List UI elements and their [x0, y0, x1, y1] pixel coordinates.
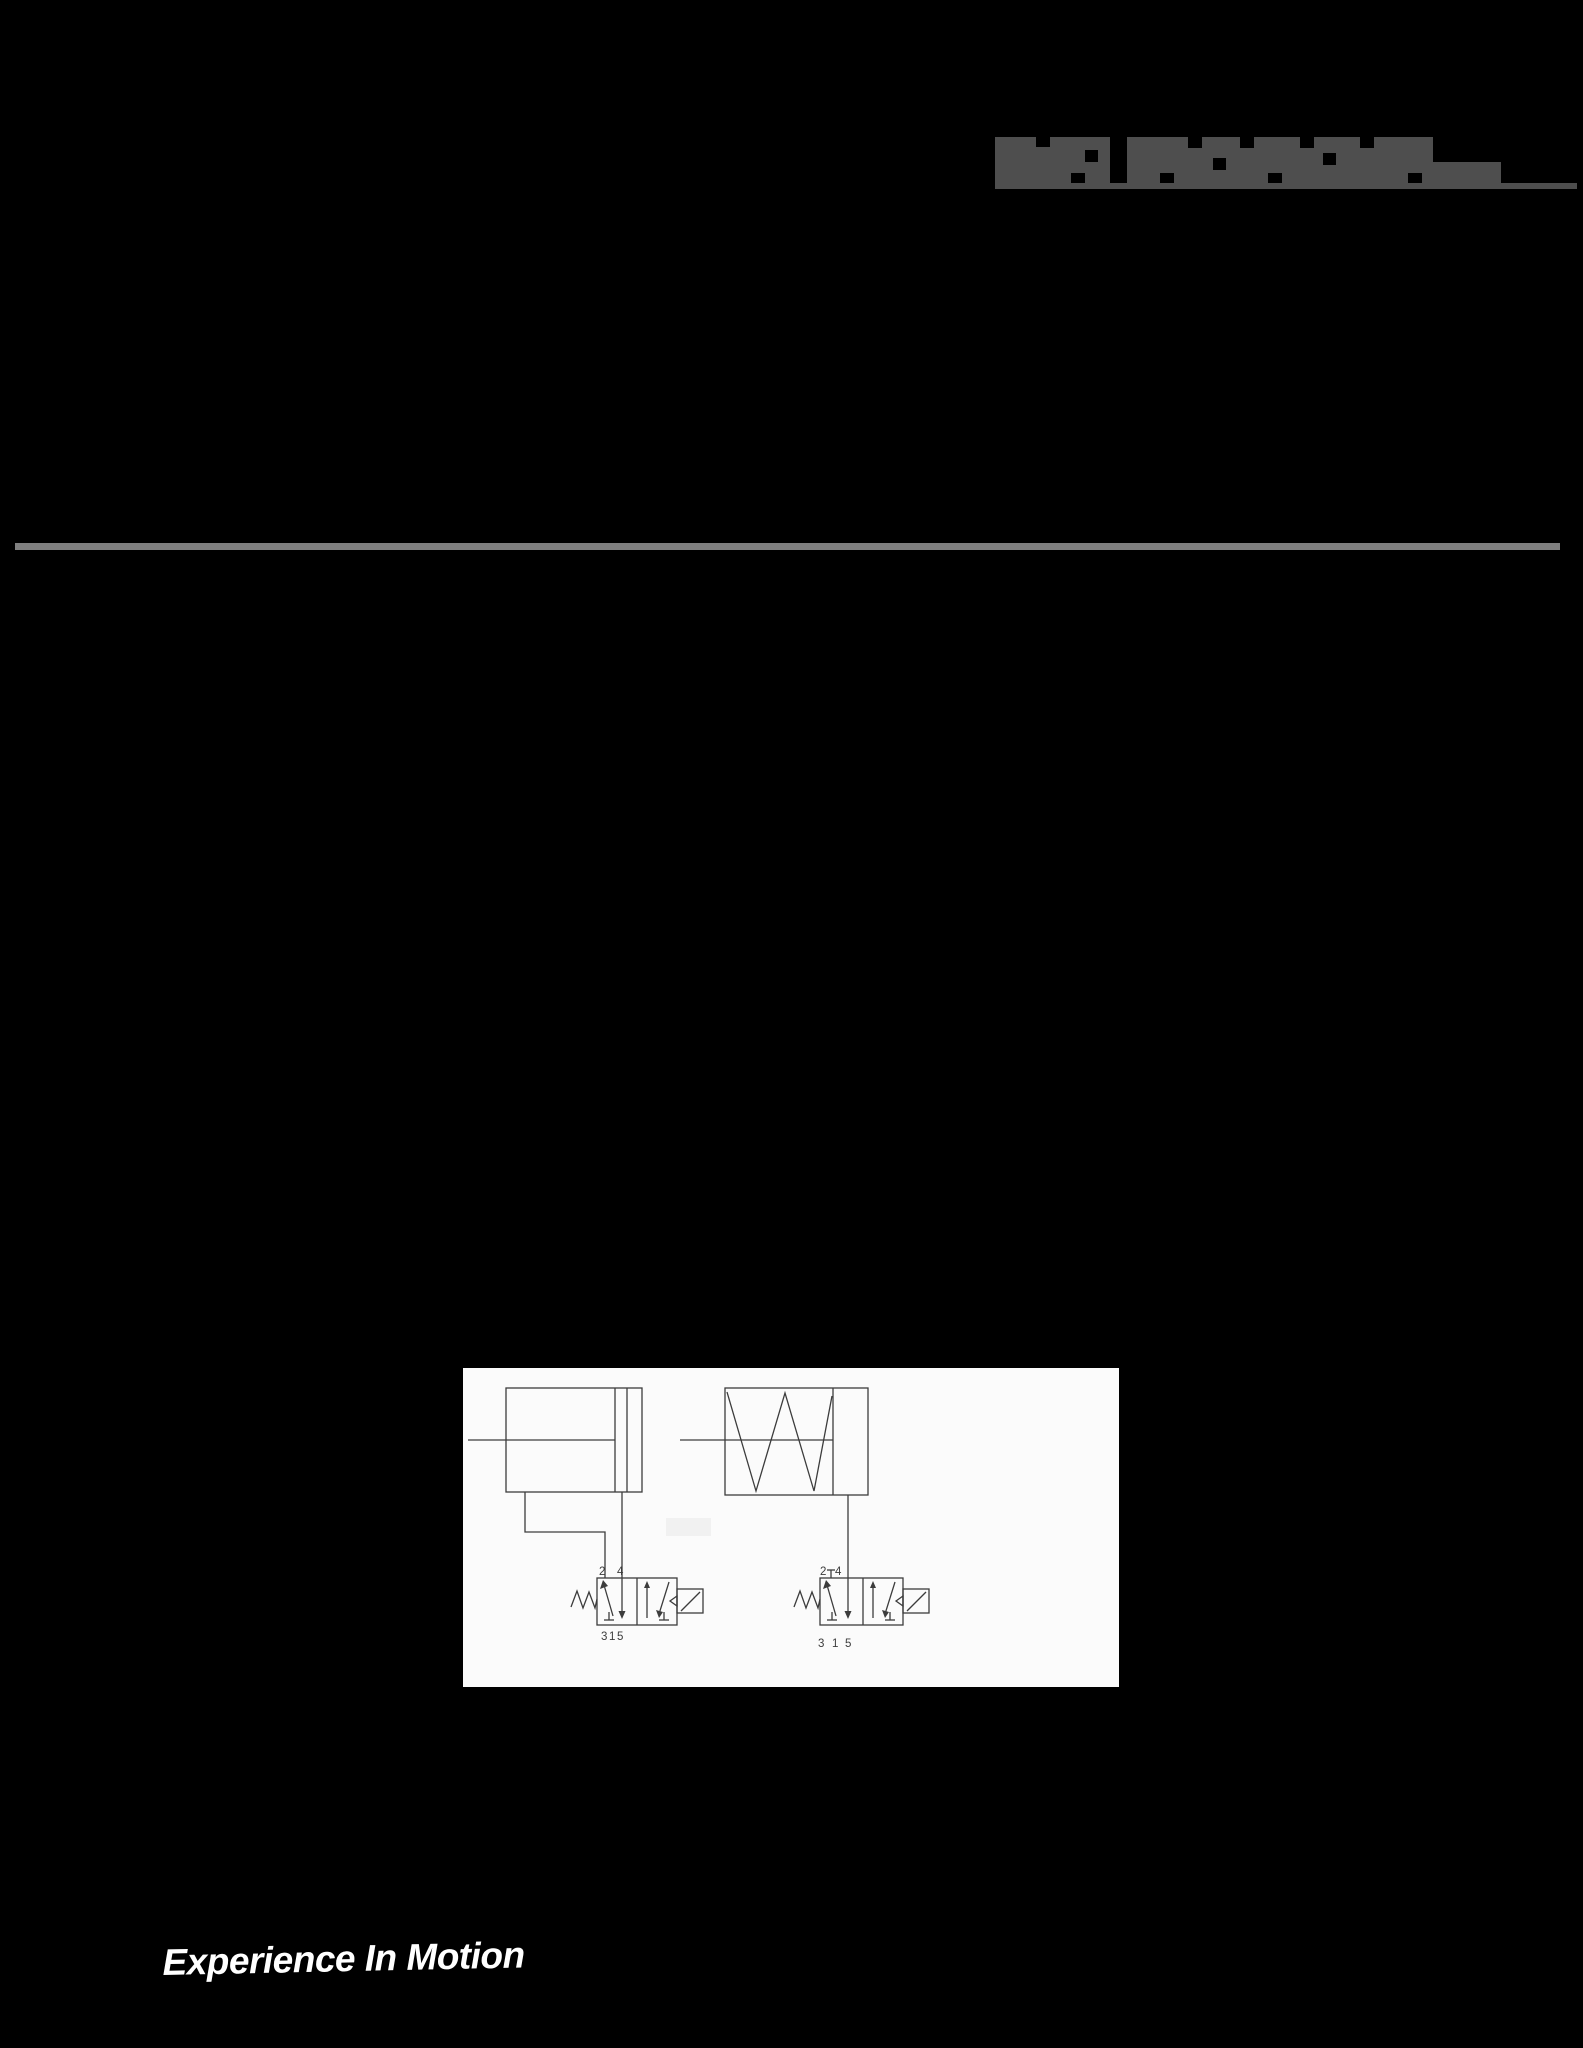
tagline: Experience In Motion	[162, 1934, 525, 1984]
pneumatic-circuits-diagram: 2 4 3 1 5	[463, 1368, 1119, 1687]
scan-artifact	[666, 1518, 711, 1536]
port-label-4: 4	[617, 1566, 624, 1578]
left-circuit-tubing	[525, 1492, 626, 1619]
section-divider	[15, 543, 1560, 550]
port-label-1: 1	[609, 1631, 615, 1643]
solenoid-icon	[896, 1589, 929, 1613]
right-valve-5-2-solenoid: 2 4 3 1 5	[794, 1566, 929, 1650]
port-label-3: 3	[818, 1638, 824, 1650]
right-circuit-cylinder	[680, 1388, 868, 1495]
port-label-4: 4	[835, 1566, 842, 1578]
cylinder-spring-icon	[727, 1392, 832, 1491]
port-label-5: 5	[845, 1638, 851, 1650]
document-page: 2 4 3 1 5	[0, 0, 1583, 2048]
pneumatic-diagram-panel: 2 4 3 1 5	[463, 1368, 1119, 1687]
flowserve-logo-icon	[993, 133, 1583, 191]
right-circuit-tubing	[845, 1495, 852, 1619]
port-label-5: 5	[617, 1631, 623, 1643]
spring-icon	[794, 1591, 820, 1608]
left-valve-5-2-solenoid: 2 4 3 1 5	[571, 1566, 703, 1643]
port-label-3: 3	[601, 1631, 607, 1643]
port-label-2: 2	[599, 1566, 605, 1578]
spring-icon	[571, 1591, 597, 1608]
left-circuit-cylinder	[468, 1388, 642, 1492]
port-label-2: 2	[820, 1566, 826, 1578]
port-label-1: 1	[832, 1638, 838, 1650]
solenoid-icon	[670, 1589, 703, 1613]
